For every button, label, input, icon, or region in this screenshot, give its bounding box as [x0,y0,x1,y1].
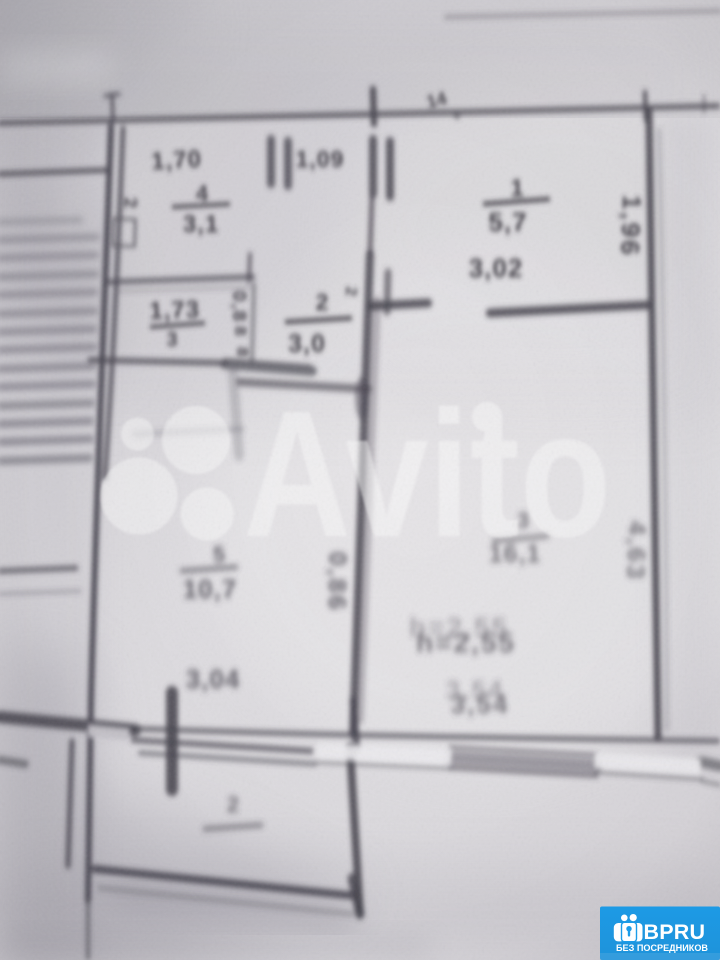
svg-text:БЕЗ ПОСРЕДНИКОВ: БЕЗ ПОСРЕДНИКОВ [616,943,708,954]
svg-text:BPRU: BPRU [644,920,706,944]
